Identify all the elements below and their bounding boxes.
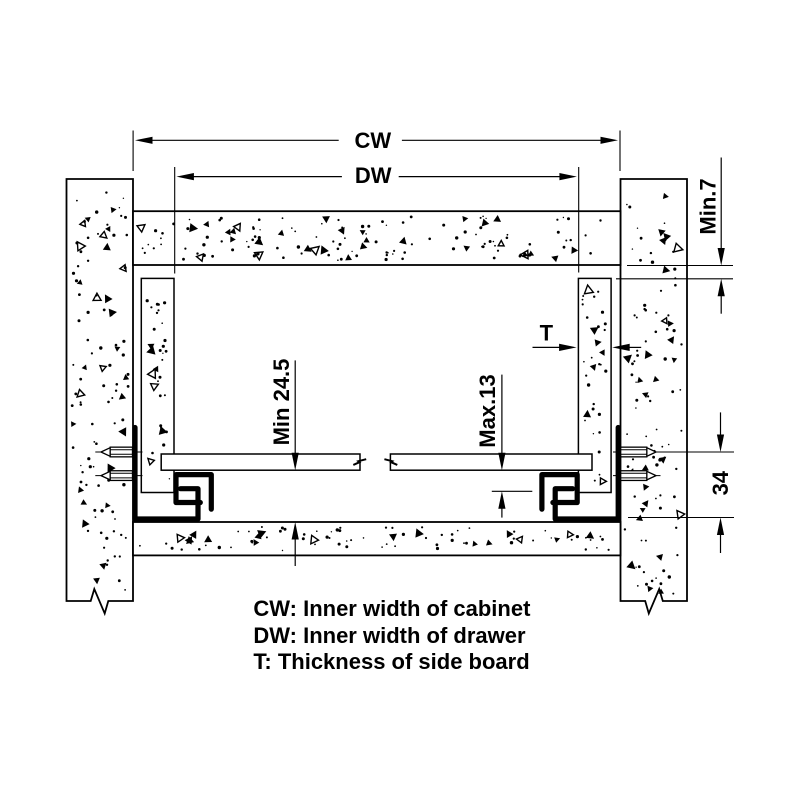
svg-text:DW: Inner width of drawer: DW: Inner width of drawer: [253, 623, 526, 648]
svg-text:Min.7: Min.7: [696, 178, 721, 234]
svg-text:CW: Inner width of cabinet: CW: Inner width of cabinet: [253, 596, 531, 621]
svg-text:DW: DW: [355, 163, 392, 188]
svg-text:CW: CW: [354, 128, 391, 153]
svg-text:34: 34: [708, 470, 733, 495]
svg-text:Max.13: Max.13: [475, 374, 500, 447]
svg-text:T: T: [540, 320, 554, 345]
svg-text:Min 24.5: Min 24.5: [269, 359, 294, 446]
svg-text:T: Thickness of side board: T: Thickness of side board: [253, 649, 529, 674]
